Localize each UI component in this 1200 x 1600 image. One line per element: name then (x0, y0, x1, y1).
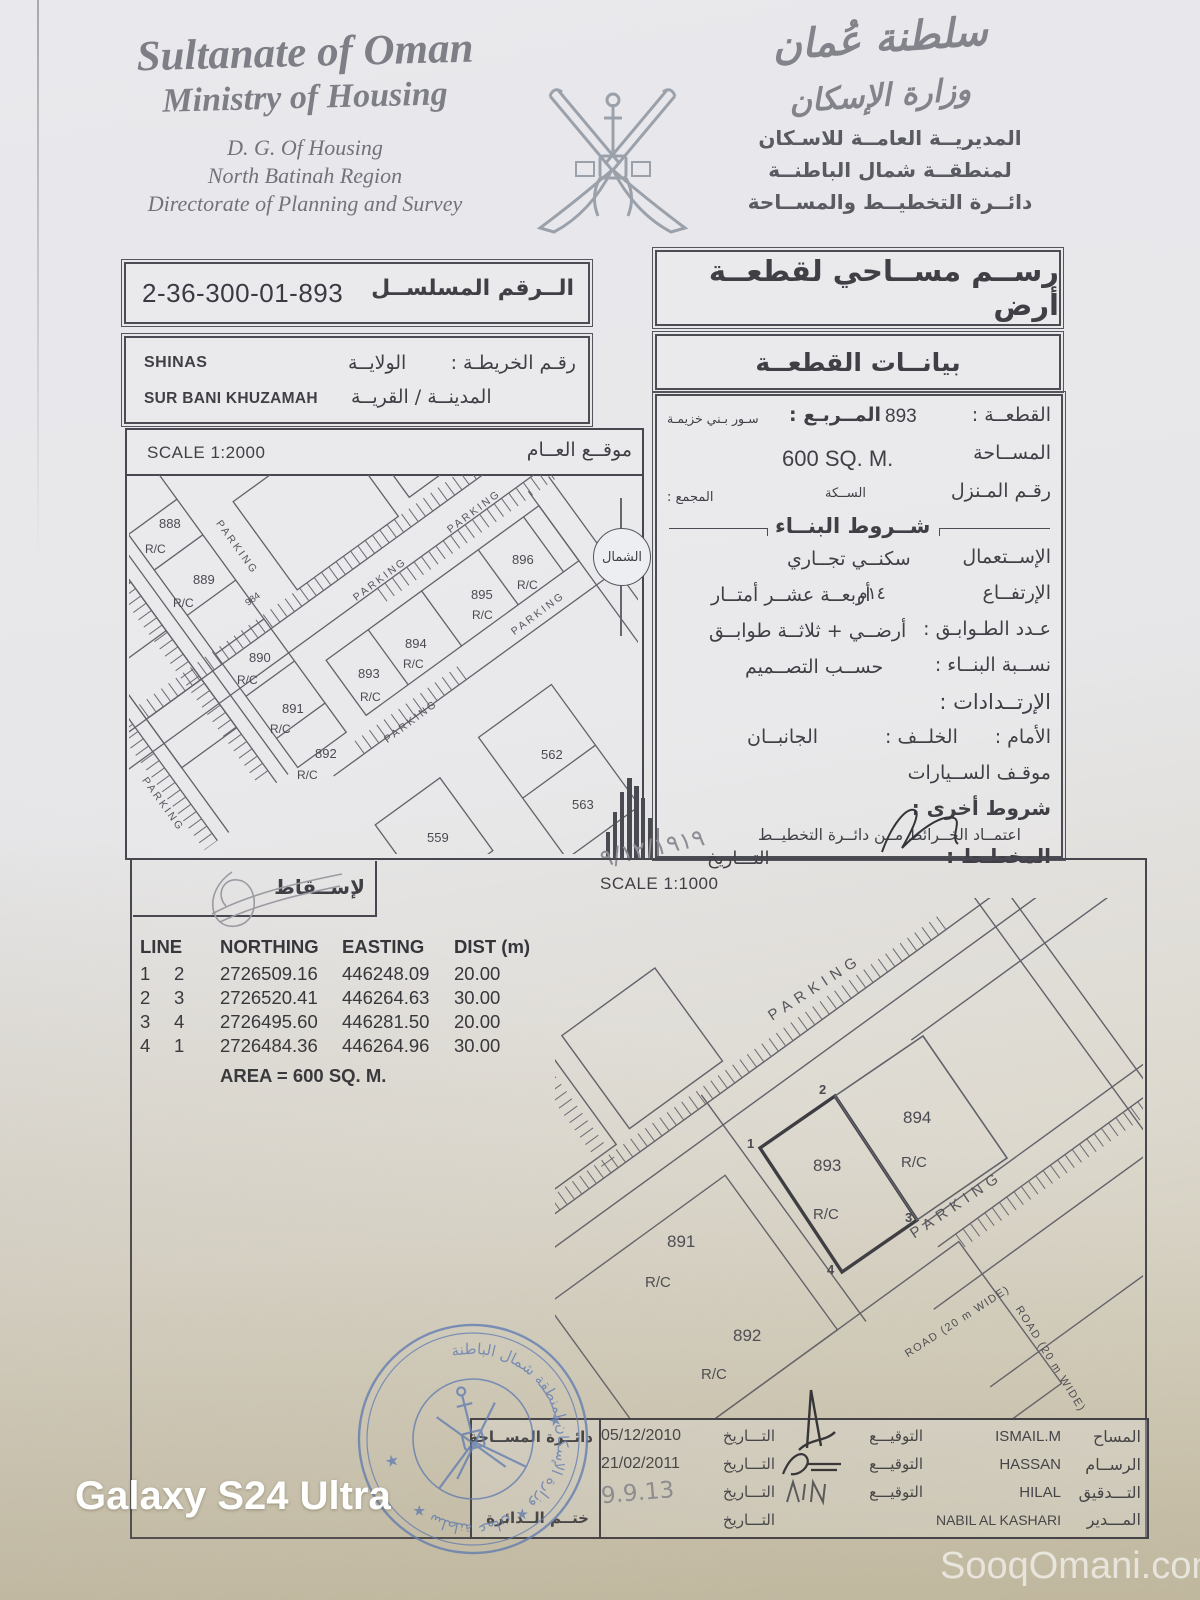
north-label: الشمال (602, 550, 642, 565)
paper-fold-line (37, 0, 39, 560)
corner-label: 1 (747, 1136, 754, 1151)
rc-label: R/C (813, 1206, 839, 1223)
plot-label: 563 (572, 797, 594, 812)
rc-label: R/C (901, 1154, 927, 1171)
serial-number-box: الــرقم المسلســل 2-36-300-01-893 (124, 262, 590, 324)
role-label: التـــدقيق (1061, 1483, 1141, 1502)
line-to: 2 (174, 963, 220, 985)
signature-row: الرســام HASSAN التوقيـــع التـــاريخ 21… (601, 1450, 1147, 1478)
person-name: ISMAIL.M (923, 1428, 1061, 1445)
detail-map-lines (555, 898, 1143, 1418)
parking-field-label: موقـف الســيارات (908, 762, 1051, 784)
role-label: المساح (1061, 1427, 1141, 1446)
easting-value: 446281.50 (342, 1011, 454, 1033)
role-label: الرســام (1061, 1455, 1141, 1474)
rc-label: R/C (237, 673, 258, 687)
corner-label: 2 (819, 1082, 826, 1097)
area-label: المســاحة (973, 442, 1051, 464)
rc-label: R/C (701, 1366, 727, 1383)
back-label: الخلــف : (885, 726, 958, 748)
signature-label: التوقيـــع (847, 1483, 923, 1501)
header-en-line5: Directorate of Planning and Survey (85, 191, 525, 217)
easting-value: 446264.63 (342, 987, 454, 1009)
plot-label: 896 (512, 552, 534, 567)
plot-label: 893 (358, 666, 380, 681)
easting-value: 446264.96 (342, 1035, 454, 1057)
dist-value: 30.00 (454, 987, 544, 1009)
height-value: أربعــة عشــر أمتــار (711, 584, 871, 606)
coordinates-header-row: LINE NORTHING EASTING DIST (m) (140, 936, 544, 958)
plot-number-label: القطعــة : (972, 404, 1051, 426)
serial-label: الــرقم المسلســل (371, 276, 574, 301)
date-label: التـــاريخ (701, 1455, 775, 1473)
person-name: NABIL AL KASHARI (847, 1512, 1061, 1528)
rc-label: R/C (270, 722, 291, 736)
overview-map-lines (129, 475, 638, 854)
signature-scribble (779, 1478, 843, 1510)
plot-data-title: بيانــات القطعــة (755, 348, 960, 377)
plot-label: 888 (159, 516, 181, 531)
coordinates-row: 2 3 2726520.41 446264.63 30.00 (140, 987, 544, 1009)
header-arabic-calligraphy1: سلطنة عُمان (739, 6, 1022, 71)
line-to: 4 (174, 1011, 220, 1033)
signature-scribble (781, 1388, 841, 1454)
device-watermark: Galaxy S24 Ultra (75, 1474, 391, 1519)
street-label: الســكة (825, 486, 866, 501)
ratio-label: نســبة البنــاء : (935, 654, 1051, 676)
northing-value: 2726495.60 (220, 1011, 342, 1033)
floors-label: عـدد الطـوابـق : (923, 618, 1051, 640)
plot-label: 891 (667, 1232, 695, 1252)
role-label: المـــدير (1061, 1510, 1141, 1529)
col-line: LINE (140, 936, 220, 958)
date-value-handwritten: 9.9.13 (600, 1475, 702, 1510)
building-conditions-title: شــروط البنــاء (775, 514, 930, 538)
rc-label: R/C (645, 1274, 671, 1291)
dist-value: 20.00 (454, 1011, 544, 1033)
coordinates-table: LINE NORTHING EASTING DIST (m) 1 2 27265… (140, 936, 544, 1087)
signature-rows: المساح ISMAIL.M التوقيـــع التـــاريخ 05… (601, 1420, 1147, 1537)
plot-label: 894 (405, 636, 427, 651)
oman-emblem-icon (520, 78, 705, 238)
north-indicator: الشمال (593, 528, 651, 586)
town-label: المدينــة / القريــة (351, 386, 492, 408)
rc-label: R/C (517, 578, 538, 592)
plot-label: 889 (193, 572, 215, 587)
map-number-label: رقـم الخريطـة : (451, 352, 576, 374)
northing-value: 2726509.16 (220, 963, 342, 985)
plot-label: 559 (427, 830, 449, 845)
plot-data-title-box: بيانــات القطعــة (655, 334, 1061, 390)
signature-row: المـــدير NABIL AL KASHARI التـــاريخ (601, 1506, 1147, 1533)
signature-row: التـــدقيق HILAL التوقيـــع التـــاريخ 9… (601, 1478, 1147, 1506)
serial-value: 2-36-300-01-893 (142, 278, 343, 309)
plot-label: 892 (733, 1326, 761, 1346)
scanned-survey-document: Sultanate of Oman Ministry of Housing D.… (0, 0, 1200, 1600)
department-stamp: سلطنة عمان ★ وزارة الإسكان لمنطقة شمال ا… (348, 1314, 598, 1564)
signature-row: المساح ISMAIL.M التوقيـــع التـــاريخ 05… (601, 1422, 1147, 1450)
header-arabic-line1: المديريــة العامــة للاسـكان (720, 126, 1060, 150)
northing-value: 2726520.41 (220, 987, 342, 1009)
plot-label: 894 (903, 1108, 931, 1128)
header-en-line3: D. G. Of Housing (85, 135, 525, 161)
person-name: HASSAN (923, 1456, 1061, 1473)
easting-value: 446248.09 (342, 963, 454, 985)
line-from: 3 (140, 1011, 174, 1033)
header-en-line1: Sultanate of Oman (84, 22, 525, 83)
line-from: 1 (140, 963, 174, 985)
wilaya-label: الولايــة (348, 352, 406, 374)
area-value: 600 SQ. M. (782, 446, 893, 472)
use-label: الإســتعمال (962, 546, 1051, 568)
square-label: المــربـع : (789, 404, 881, 426)
header-arabic-line3: دائــرة التخطيــط والمســاحة (720, 190, 1060, 214)
signature-label: التوقيـــع (847, 1427, 923, 1445)
site-watermark: SooqOmani.com (940, 1545, 1200, 1588)
signature-scribble (777, 1448, 845, 1482)
plot-data-panel: القطعــة : 893 المــربـع : سـور بـني خزي… (655, 394, 1063, 858)
front-label: الأمام : (995, 726, 1051, 748)
date-value: 21/02/2011 (601, 1455, 701, 1473)
rc-label: R/C (145, 542, 166, 556)
complex-label: المجمع : (667, 490, 713, 505)
header-english: Sultanate of Oman Ministry of Housing D.… (85, 28, 525, 217)
ratio-value: حســب التصــميم (745, 656, 883, 678)
date-label: التـــاريخ (701, 1427, 775, 1445)
corner-label: 4 (827, 1262, 834, 1277)
rc-label: R/C (173, 596, 194, 610)
overview-map: SCALE 1:2000 موقــع العــام (125, 428, 644, 860)
detail-map: 1 2 3 4 893 R/C 894 R/C 891 R/C 892 R/C … (555, 898, 1143, 1418)
date-label: التـــاريخ (701, 1483, 775, 1501)
drawing-title-box: رســم مســاحي لقطعــة أرض (655, 250, 1061, 326)
date-value: 05/12/2010 (601, 1427, 701, 1445)
line-to: 1 (174, 1035, 220, 1057)
overview-scale-label: SCALE 1:2000 (147, 443, 265, 463)
rc-label: R/C (403, 657, 424, 671)
north-line-bottom (620, 584, 622, 636)
setbacks-label: الإرتــدادات : (939, 690, 1051, 714)
col-easting: EASTING (342, 936, 454, 958)
location-box: رقـم الخريطـة : الولايــة SHINAS المدينـ… (124, 336, 590, 424)
northing-value: 2726484.36 (220, 1035, 342, 1057)
sides-label: الجانبــان (747, 726, 818, 748)
col-northing: NORTHING (220, 936, 342, 958)
header-arabic-calligraphy2: وزارة الإسكان (754, 69, 1006, 122)
plot-label: 892 (315, 746, 337, 761)
planner-signature (862, 804, 972, 856)
col-dist: DIST (m) (454, 936, 544, 958)
square-value: سـور بـني خزيمـة (667, 411, 759, 426)
header-arabic-line2: لمنطقــة شمال الباطنــة (720, 158, 1060, 182)
rc-label: R/C (472, 608, 493, 622)
drawing-title: رســم مســاحي لقطعــة أرض (657, 254, 1059, 322)
plot-label: 893 (813, 1156, 841, 1176)
rc-label: R/C (297, 768, 318, 782)
plot-label: 895 (471, 587, 493, 602)
coordinates-row: 3 4 2726495.60 446281.50 20.00 (140, 1011, 544, 1033)
dist-value: 20.00 (454, 963, 544, 985)
coordinates-row: 4 1 2726484.36 446264.96 30.00 (140, 1035, 544, 1057)
height-label: الإرتفــاع (983, 582, 1051, 604)
rc-label: R/C (360, 690, 381, 704)
overview-title: موقــع العــام (527, 439, 632, 461)
line-to: 3 (174, 987, 220, 1009)
plot-label: 890 (249, 650, 271, 665)
header-en-line4: North Batinah Region (85, 163, 525, 189)
use-value: سكنــي تجــاري (787, 548, 911, 570)
dist-value: 30.00 (454, 1035, 544, 1057)
detail-scale-label: SCALE 1:1000 (600, 874, 718, 894)
town-value: SUR BANI KHUZAMAH (144, 390, 318, 408)
plot-label: 562 (541, 747, 563, 762)
stamp-star-left: ★ (383, 1452, 401, 1472)
plot-number-value: 893 (885, 406, 917, 428)
corner-label: 3 (905, 1210, 912, 1225)
date-label: التـــاريخ (701, 1511, 775, 1529)
line-from: 2 (140, 987, 174, 1009)
bracket-line-left (669, 528, 768, 536)
person-name: HILAL (923, 1484, 1061, 1501)
area-line: AREA = 600 SQ. M. (220, 1065, 544, 1087)
north-line-top (620, 498, 622, 528)
line-from: 4 (140, 1035, 174, 1057)
coordinates-row: 1 2 2726509.16 446248.09 20.00 (140, 963, 544, 985)
pencil-scribble (192, 852, 352, 944)
plot-label: 891 (282, 701, 304, 716)
floors-value: أرضــي + ثلاثــة طوابــق (709, 620, 906, 642)
bracket-line-right (939, 528, 1050, 536)
house-number-label: رقـم المـنزل (951, 480, 1051, 502)
signature-label: التوقيـــع (847, 1455, 923, 1473)
wilaya-value: SHINAS (144, 354, 207, 372)
